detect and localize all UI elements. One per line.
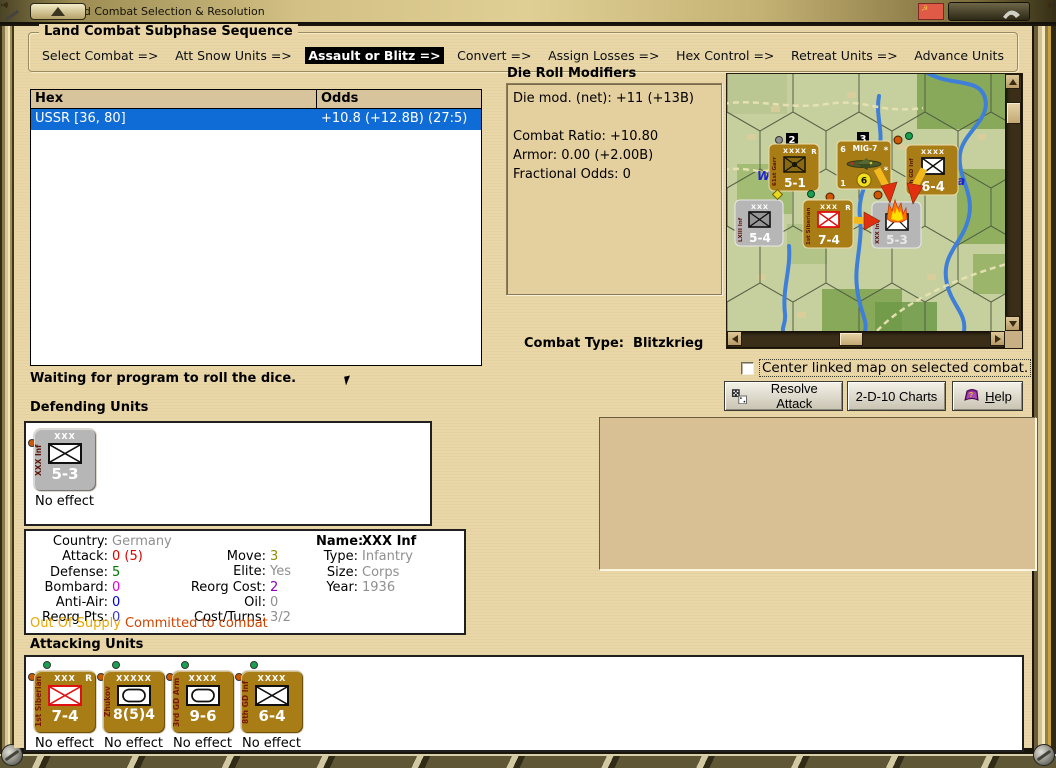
window-frame-left [0, 26, 14, 756]
detail-value: 0 (5) [112, 549, 143, 564]
armor-symbol [117, 685, 151, 706]
map-counter-5-4[interactable]: XXX LXIII Inf 5-4 [735, 200, 783, 246]
center-map-label[interactable]: Center linked map on selected combat. [759, 359, 1031, 377]
details-column-3: Name:XXX Inf Type:Infantry Size:Corps Ye… [316, 534, 466, 595]
resolve-attack-button[interactable]: Resolve Attack [724, 381, 843, 411]
svg-text:XXXX: XXXX [783, 147, 807, 155]
unit-result: No effect [34, 494, 98, 509]
detail-label: Elite: [174, 564, 270, 579]
detail-value: 2 [270, 580, 278, 595]
attacking-units-panel: XXX R 1st Siberian 7-4 No effect XXXXX Z… [24, 655, 1024, 752]
scroll-left-button[interactable] [727, 331, 742, 346]
detail-label: Name: [316, 534, 362, 549]
unit-counter[interactable]: XXX XXX Inf 5-3 [34, 429, 96, 491]
die-roll-modifiers-title: Die Roll Modifiers [507, 66, 636, 81]
detail-value: 5 [112, 565, 120, 580]
svg-text:7-4: 7-4 [818, 233, 840, 247]
combat-type-label: Combat Type: [524, 336, 624, 351]
svg-text:6-4: 6-4 [921, 180, 945, 195]
dice-icon [731, 389, 748, 404]
step-advance-units[interactable]: Advance Units [911, 47, 1007, 64]
blank-line [513, 108, 715, 127]
combat-type-value: Blitzkrieg [633, 336, 703, 351]
status-dot [894, 136, 902, 144]
svg-text:61st Garr: 61st Garr [772, 157, 778, 186]
unit-name: 8th GD Inf [241, 673, 251, 731]
close-button[interactable] [948, 2, 1030, 21]
unit-counter[interactable]: XXX R 1st Siberian 7-4 [34, 671, 96, 733]
status-dot [43, 661, 51, 669]
step-att-snow-units[interactable]: Att Snow Units => [172, 47, 295, 64]
attacking-unit[interactable]: XXXX 8th GD Inf 6-4 No effect [241, 665, 305, 751]
detail-value: 1936 [362, 580, 395, 595]
map-horizontal-scrollbar[interactable] [727, 331, 1005, 348]
resolve-attack-label: Resolve Attack [753, 381, 837, 411]
detail-label: Move: [174, 549, 270, 564]
detail-label: Size: [316, 565, 362, 580]
screw-icon [1, 1, 8, 9]
details-column-2: Move:3 Elite:Yes Reorg Cost:2 Oil:0 Cost… [174, 534, 334, 625]
column-header-hex[interactable]: Hex [31, 90, 317, 108]
help-label: Help [985, 389, 1012, 404]
detail-label: Oil: [174, 595, 270, 610]
step-retreat-units[interactable]: Retreat Units => [788, 47, 901, 64]
detail-value: 0 [112, 580, 120, 595]
detail-label: Country: [28, 534, 112, 549]
hex-map[interactable]: W otsa 2 XXXX R 61st Garr [727, 74, 1005, 331]
detail-label: Year: [316, 580, 362, 595]
infantry-red-symbol [48, 685, 82, 706]
svg-text:6: 6 [861, 177, 867, 187]
status-text: Waiting for program to roll the dice. [30, 371, 296, 386]
window-frame-right [1032, 26, 1056, 756]
detail-label: Defense: [28, 565, 112, 580]
results-panel [599, 417, 1036, 570]
step-convert[interactable]: Convert => [454, 47, 534, 64]
unit-name: XXX Inf [34, 431, 44, 489]
svg-text:1st Siberian: 1st Siberian [806, 208, 812, 245]
unit-name-value: XXX Inf [362, 534, 416, 549]
out-of-supply-flag: Out Of Supply [30, 616, 121, 631]
unit-name: 1st Siberian [34, 673, 44, 731]
infantry-symbol [48, 443, 82, 464]
map-counter-7-4[interactable]: XXX R 1st Siberian 7-4 [803, 200, 853, 248]
scrollbar-corner [1005, 331, 1022, 348]
svg-text:*: * [884, 146, 889, 156]
svg-text:LXIII Inf: LXIII Inf [738, 217, 744, 242]
detail-value: 3/2 [270, 610, 291, 625]
status-dot [776, 137, 783, 144]
unit-result: No effect [103, 736, 167, 751]
attacking-unit[interactable]: XXXXX Zhukov 8(5)4 No effect [103, 665, 167, 751]
detail-label: Anti-Air: [28, 595, 112, 610]
map-counter-5-3[interactable]: XXX Inf 5-3 [872, 200, 921, 248]
unit-result: No effect [172, 736, 236, 751]
center-map-checkbox[interactable] [741, 362, 754, 375]
combat-ratio: Combat Ratio: +10.80 [513, 127, 715, 146]
detail-value: Corps [362, 565, 399, 580]
svg-text:R: R [845, 204, 851, 212]
combat-list-header: Hex Odds [31, 90, 481, 109]
collapse-button[interactable] [30, 3, 86, 20]
detail-value: Infantry [362, 549, 413, 564]
unit-result: No effect [241, 736, 305, 751]
svg-text:XXXX: XXXX [921, 148, 945, 156]
status-dot [250, 661, 258, 669]
status-dot [906, 133, 913, 140]
svg-text:*: * [884, 166, 889, 176]
combat-type: Combat Type: Blitzkrieg [524, 336, 703, 351]
unit-result: No effect [34, 736, 98, 751]
svg-text:R: R [811, 148, 817, 156]
combat-row-odds: +10.8 (+12.8B) (27:5) [317, 109, 481, 130]
window-frame-bottom [0, 754, 1056, 768]
unit-counter[interactable]: XXXXX Zhukov 8(5)4 [103, 671, 165, 733]
committed-flag: Committed to combat [125, 616, 268, 631]
fractional-odds: Fractional Odds: 0 [513, 165, 715, 184]
combat-row[interactable]: USSR [36, 80] +10.8 (+12.8B) (27:5) [31, 109, 481, 130]
unit-name: 3rd GD Arm [172, 673, 182, 731]
svg-text:5-3: 5-3 [886, 233, 908, 247]
detail-value: Germany [112, 534, 172, 549]
titlebar[interactable]: Land Combat Selection & Resolution [0, 0, 1056, 24]
armor-modifier: Armor: 0.00 (+2.00B) [513, 146, 715, 165]
detail-value: Yes [270, 564, 291, 579]
unit-counter[interactable]: XXXX 3rd GD Arm 9-6 [172, 671, 234, 733]
detail-value: 3 [270, 549, 278, 564]
step-select-combat[interactable]: Select Combat => [39, 47, 162, 64]
svg-text:XXX: XXX [751, 203, 769, 211]
combat-list: Hex Odds USSR [36, 80] +10.8 (+12.8B) (2… [30, 89, 482, 366]
step-hex-control[interactable]: Hex Control => [673, 47, 777, 64]
scroll-up-button[interactable] [1005, 74, 1020, 89]
screw-icon [1033, 744, 1055, 766]
die-mod-net: Die mod. (net): +11 (+13B) [513, 89, 715, 108]
svg-text:1: 1 [840, 179, 846, 188]
infantry-symbol [255, 685, 289, 706]
defending-unit[interactable]: XXX XXX Inf 5-3 No effect [34, 429, 98, 509]
horizontal-scroll-thumb[interactable] [839, 332, 863, 346]
unit-counter[interactable]: XXXX 8th GD Inf 6-4 [241, 671, 303, 733]
linked-map[interactable]: W otsa 2 XXXX R 61st Garr [726, 73, 1023, 349]
mouse-cursor [344, 375, 352, 385]
handset-icon [1001, 7, 1023, 19]
supply-status: Out Of SupplyCommitted to combat [30, 616, 272, 631]
svg-text:XXX: XXX [820, 203, 838, 211]
charts-button[interactable]: 2-D-10 Charts [847, 381, 946, 411]
defending-units-panel: XXX XXX Inf 5-3 No effect [24, 421, 432, 526]
status-dot [808, 191, 815, 198]
subphase-title: Land Combat Subphase Sequence [39, 24, 298, 39]
triangle-up-icon [51, 7, 65, 16]
attacking-units-heading: Attacking Units [30, 637, 143, 652]
die-roll-modifiers-panel: Die mod. (net): +11 (+13B) Combat Ratio:… [506, 83, 722, 295]
map-counter-5-1[interactable]: XXXX R 61st Garr 5-1 [769, 144, 819, 191]
triangle-down-icon [1009, 321, 1017, 327]
triangle-right-icon [995, 335, 1001, 343]
attacking-unit[interactable]: XXX R 1st Siberian 7-4 No effect [34, 665, 98, 751]
defending-units-heading: Defending Units [30, 400, 148, 415]
vertical-scroll-thumb[interactable] [1006, 102, 1021, 124]
scroll-down-button[interactable] [1005, 316, 1020, 331]
status-dot [874, 191, 882, 199]
detail-label: Type: [316, 549, 362, 564]
charts-label: 2-D-10 Charts [856, 389, 938, 404]
triangle-up-icon [1009, 79, 1017, 85]
reorg-flag: R [85, 674, 92, 684]
unit-details-panel: Country:Germany Attack:0 (5) Defense:5 B… [24, 529, 466, 635]
detail-value: 0 [270, 595, 278, 610]
armor-symbol [186, 685, 220, 706]
svg-text:MIG-7: MIG-7 [853, 144, 878, 153]
subphase-steps: Select Combat => Att Snow Units => Assau… [39, 47, 1007, 64]
svg-text:5-1: 5-1 [784, 176, 806, 190]
scroll-right-button[interactable] [990, 331, 1005, 346]
status-dot [181, 661, 189, 669]
details-column-1: Country:Germany Attack:0 (5) Defense:5 B… [28, 534, 188, 626]
soviet-flag-icon: ☭ [918, 3, 944, 20]
triangle-left-icon [732, 335, 738, 343]
step-assault-or-blitz[interactable]: Assault or Blitz => [305, 47, 443, 64]
help-button[interactable]: ? Help [952, 381, 1023, 411]
detail-label: Reorg Cost: [174, 580, 270, 595]
unit-name: Zhukov [103, 673, 113, 731]
screw-icon [1048, 1, 1055, 9]
status-dot [112, 661, 120, 669]
svg-text:6: 6 [840, 145, 846, 154]
map-vertical-scrollbar[interactable] [1005, 74, 1022, 331]
attacking-unit[interactable]: XXXX 3rd GD Arm 9-6 No effect [172, 665, 236, 751]
svg-text:XXX Inf: XXX Inf [875, 220, 881, 244]
book-icon: ? [963, 389, 980, 403]
svg-text:?: ? [969, 392, 973, 399]
center-map-option[interactable]: Center linked map on selected combat. [741, 359, 1031, 377]
detail-label: Attack: [28, 549, 112, 564]
detail-label: Bombard: [28, 580, 112, 595]
detail-value: 0 [112, 595, 120, 610]
svg-text:5-4: 5-4 [749, 231, 771, 245]
combat-row-hex: USSR [36, 80] [31, 109, 317, 130]
dialog-content: Land Combat Subphase Sequence Select Com… [14, 26, 1032, 748]
game-window: Land Combat Selection & Resolution ☭ Lan… [0, 0, 1056, 768]
column-header-odds[interactable]: Odds [317, 90, 481, 108]
step-assign-losses[interactable]: Assign Losses => [545, 47, 662, 64]
window-title: Land Combat Selection & Resolution [64, 5, 265, 18]
